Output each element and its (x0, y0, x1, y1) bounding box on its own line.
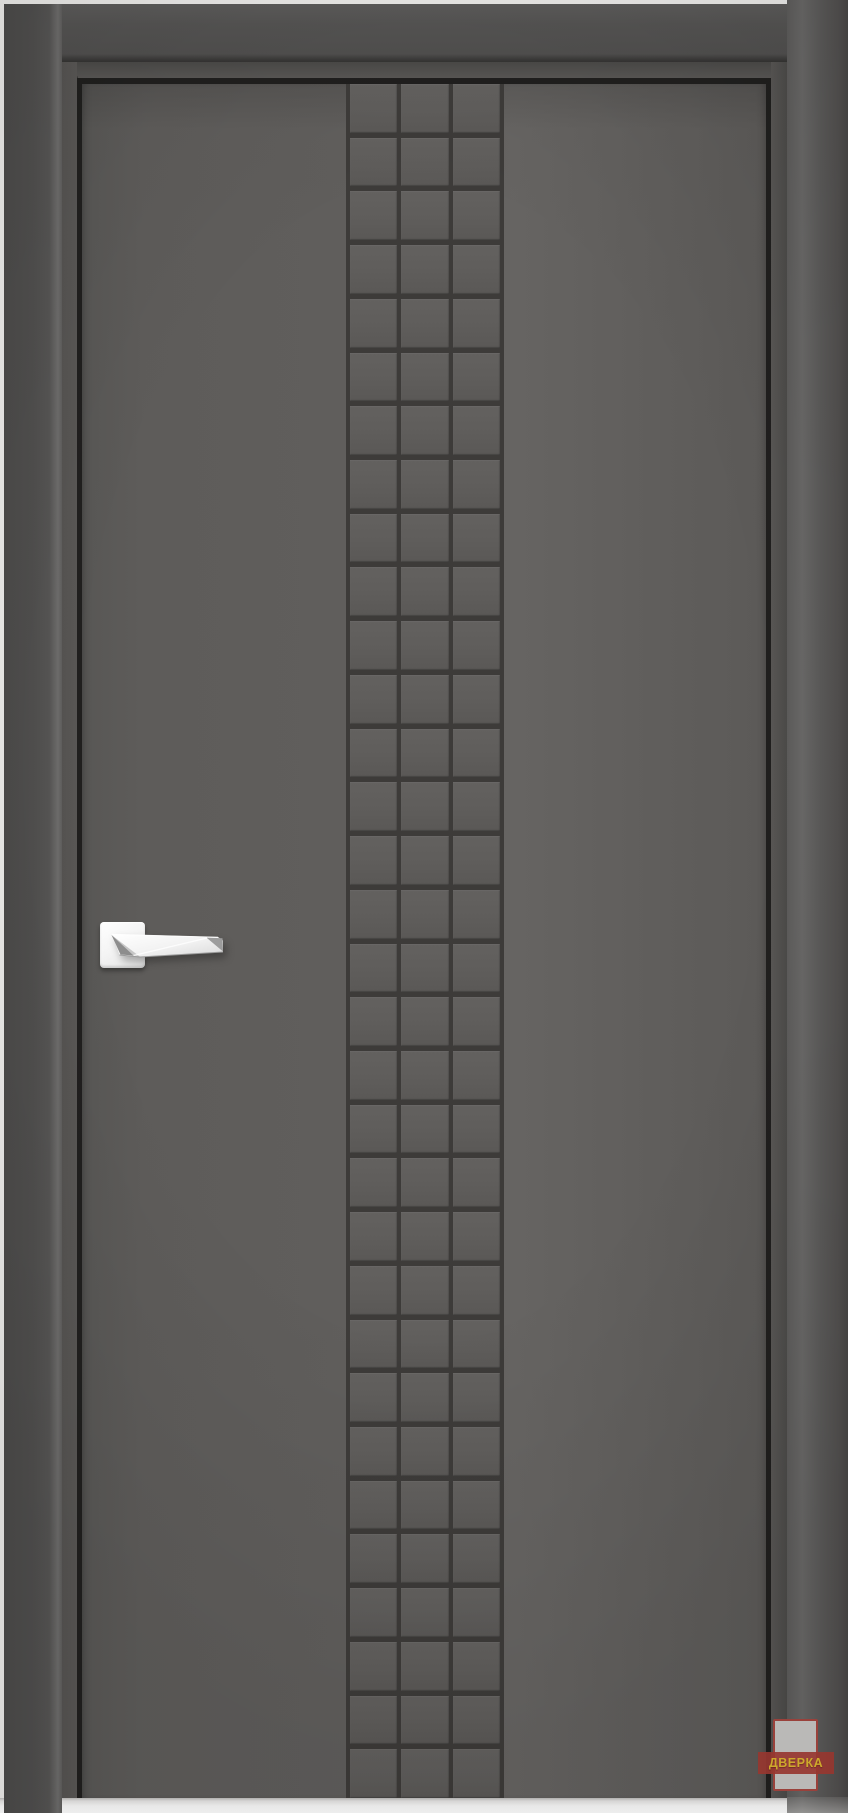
grid-cell (453, 1051, 500, 1100)
grid-cell (453, 406, 500, 455)
grid-cell (401, 138, 448, 187)
grid-cell (401, 1105, 448, 1154)
grid-cell (401, 944, 448, 993)
grid-cell (350, 514, 397, 563)
grid-cell (453, 1481, 500, 1530)
grid-cell (453, 1320, 500, 1369)
grid-cell (350, 245, 397, 294)
grid-cell (401, 675, 448, 724)
grid-cell (453, 1427, 500, 1476)
grid-cell (350, 353, 397, 402)
grid-cell (350, 621, 397, 670)
grid-cell (401, 353, 448, 402)
grid-cell (350, 1320, 397, 1369)
grid-cell (453, 1696, 500, 1745)
grid-cell (350, 1266, 397, 1315)
grid-cell (401, 1427, 448, 1476)
grid-cell (401, 836, 448, 885)
grid-cell (350, 1696, 397, 1745)
grid-cell (453, 299, 500, 348)
grid-cell (350, 836, 397, 885)
grid-cell (401, 567, 448, 616)
grid-cell (453, 191, 500, 240)
grid-cell (453, 514, 500, 563)
grid-cell (453, 782, 500, 831)
handle-lever (106, 928, 226, 962)
grid-cell (453, 1642, 500, 1691)
grid-cell (350, 1481, 397, 1530)
door-frame-lintel (62, 4, 787, 62)
floor-background (0, 1798, 848, 1813)
grid-cell (350, 406, 397, 455)
watermark-text: ДВЕРКА (769, 1756, 823, 1770)
grid-cell (453, 1534, 500, 1583)
grid-cell (350, 1642, 397, 1691)
grid-cell (401, 1212, 448, 1261)
grid-cell (453, 1588, 500, 1637)
grid-cell (401, 460, 448, 509)
grid-cell (401, 84, 448, 133)
grid-cell (350, 1212, 397, 1261)
grid-cell (350, 890, 397, 939)
grid-cell (401, 997, 448, 1046)
grid-cell (350, 1534, 397, 1583)
grid-cell (453, 1266, 500, 1315)
grid-cell (453, 1105, 500, 1154)
grid-cell (453, 245, 500, 294)
grid-cell (401, 1749, 448, 1798)
grid-cell (401, 1696, 448, 1745)
door-frame-casing-right (787, 0, 848, 1813)
grid-cell (401, 1158, 448, 1207)
frame-reveal-top (62, 62, 787, 78)
grid-cell (401, 299, 448, 348)
grid-cell (401, 1266, 448, 1315)
grid-cell (401, 514, 448, 563)
grid-cell (401, 1642, 448, 1691)
grid-cell (401, 782, 448, 831)
door-frame-casing-left (4, 4, 62, 1813)
grid-cell (350, 1427, 397, 1476)
grid-cell (453, 997, 500, 1046)
grid-cell (350, 191, 397, 240)
grid-cell (350, 729, 397, 778)
grid-cell (401, 890, 448, 939)
grid-cell (453, 1373, 500, 1422)
grid-cell (453, 729, 500, 778)
grid-cell (401, 1320, 448, 1369)
grid-cell (401, 1373, 448, 1422)
frame-reveal-left (62, 62, 77, 1798)
grid-cell (401, 1588, 448, 1637)
grid-cell (401, 1481, 448, 1530)
grid-cell (350, 84, 397, 133)
grid-cell (350, 1588, 397, 1637)
watermark-logo: ДВЕРКА (758, 1718, 834, 1792)
grid-cell (401, 191, 448, 240)
grid-cell (453, 675, 500, 724)
grid-cell (350, 675, 397, 724)
grid-cell (350, 782, 397, 831)
door-gap-right (766, 78, 771, 1798)
grid-cell (453, 890, 500, 939)
grid-cell (453, 944, 500, 993)
grid-cell (401, 406, 448, 455)
frame-reveal-right (771, 62, 787, 1798)
grid-cell (350, 460, 397, 509)
grid-cell (350, 1158, 397, 1207)
grid-cell (350, 1749, 397, 1798)
grid-cell (453, 138, 500, 187)
grid-cell (401, 245, 448, 294)
grid-cell (453, 353, 500, 402)
grid-cell (453, 84, 500, 133)
grid-cell (453, 1212, 500, 1261)
grid-cell (401, 1051, 448, 1100)
grid-cell (350, 1105, 397, 1154)
grid-cell (453, 567, 500, 616)
grid-cell (350, 567, 397, 616)
grid-cell (350, 997, 397, 1046)
door-product-photo: ДВЕРКА (0, 0, 848, 1813)
watermark-band: ДВЕРКА (758, 1752, 834, 1774)
grid-cell (453, 621, 500, 670)
grid-cell (350, 1051, 397, 1100)
decor-grid-panel (346, 84, 504, 1798)
grid-cell (453, 1749, 500, 1798)
grid-cell (453, 460, 500, 509)
grid-cell (350, 299, 397, 348)
grid-cell (453, 836, 500, 885)
grid-cell (401, 729, 448, 778)
grid-cell (350, 1373, 397, 1422)
grid-cell (401, 1534, 448, 1583)
grid-cell (401, 621, 448, 670)
grid-cell (350, 944, 397, 993)
grid-cell (453, 1158, 500, 1207)
grid-cell (350, 138, 397, 187)
